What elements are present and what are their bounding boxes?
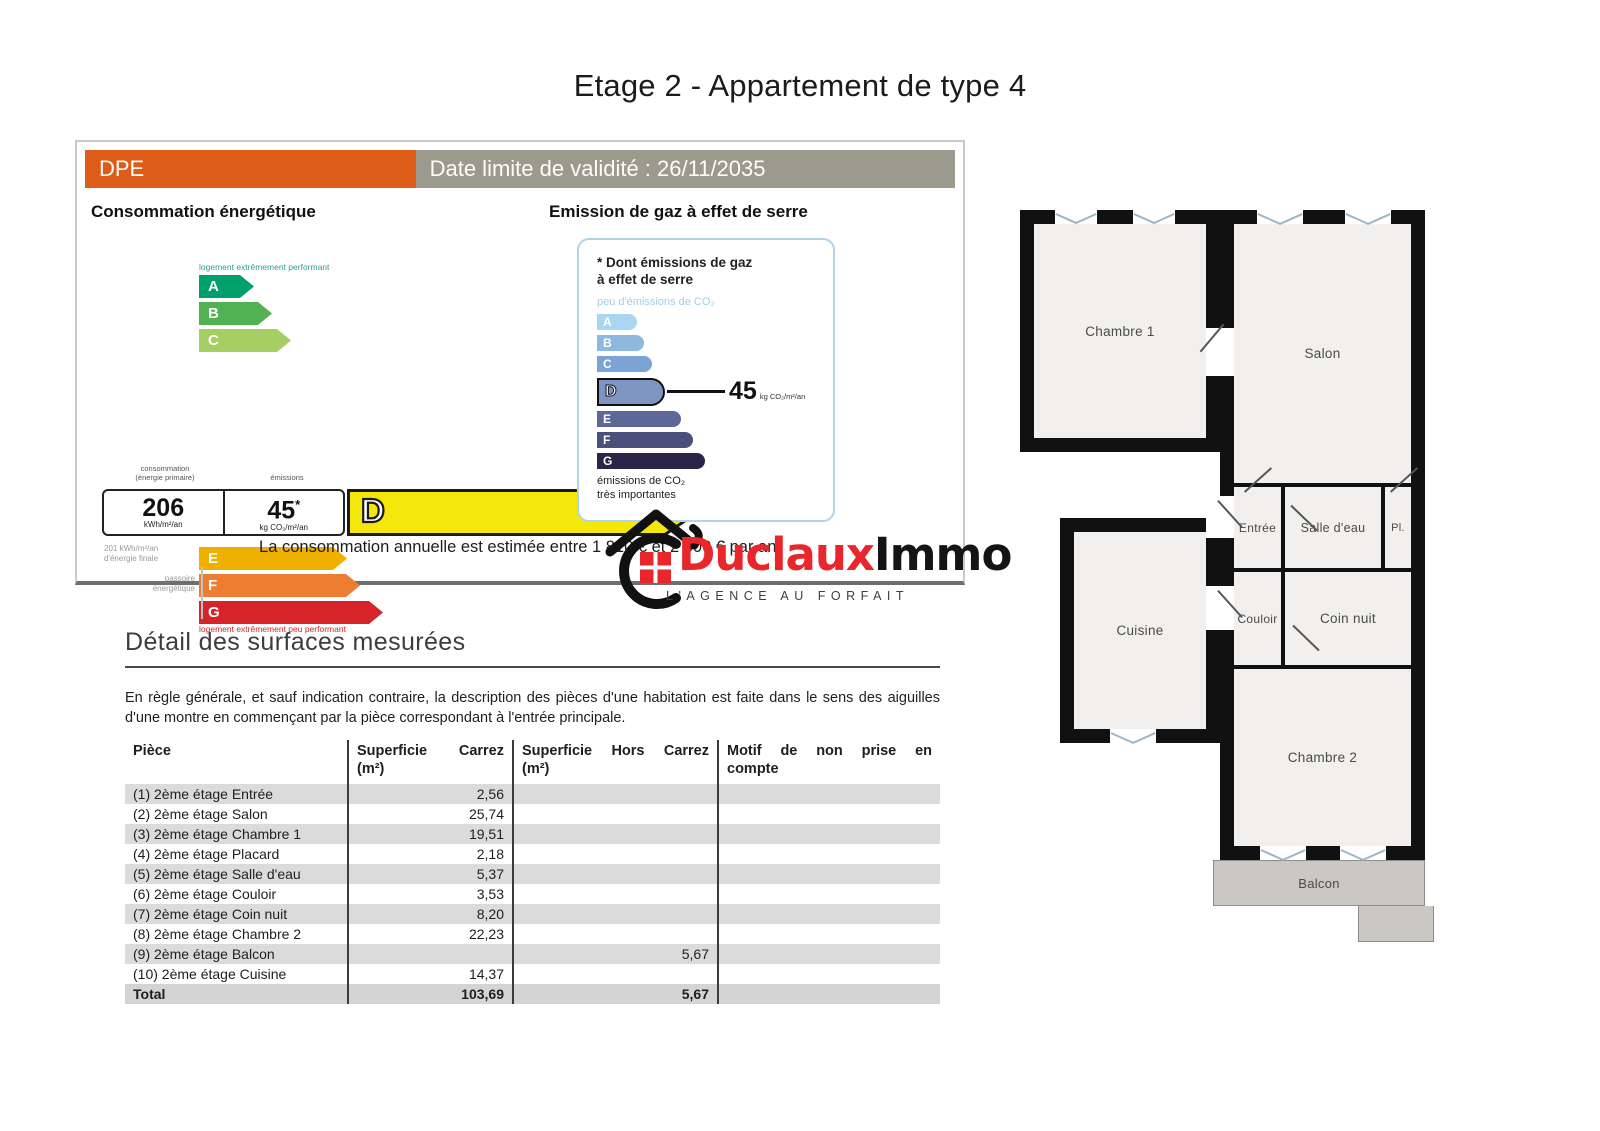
surfaces-section: Détail des surfaces mesurées En règle gé…	[125, 628, 940, 1004]
window-marker	[1345, 210, 1391, 224]
window-marker	[1260, 846, 1306, 860]
window-marker	[1110, 729, 1156, 743]
dpe-label: DPE	[85, 150, 416, 188]
table-row: (7) 2ème étage Coin nuit8,20	[125, 904, 940, 924]
co2-value: 45* kg CO₂/m²/an	[223, 491, 344, 534]
page-title: Etage 2 - Appartement de type 4	[0, 68, 1600, 104]
surfaces-table: PièceSuperficie Carrez(m²)Superficie Hor…	[125, 740, 940, 1004]
window-marker	[1340, 846, 1386, 860]
dpe-validity: Date limite de validité : 26/11/2035	[416, 150, 955, 188]
primary-energy-value: 206 kWh/m²/an	[104, 491, 223, 534]
room-cuisine: Cuisine	[1060, 518, 1220, 743]
gas-bar-A: A	[597, 314, 637, 330]
gas-bar-E: E	[597, 411, 681, 427]
dpe-header: DPE Date limite de validité : 26/11/2035	[85, 150, 955, 188]
gas-low-caption: peu d'émissions de CO₂	[597, 296, 833, 308]
window-marker	[1257, 210, 1303, 224]
door-opening	[1206, 328, 1234, 376]
room-balcon: Balcon	[1213, 860, 1425, 906]
table-row: (6) 2ème étage Couloir3,53	[125, 884, 940, 904]
gas-bar-G: G	[597, 453, 705, 469]
agency-logo: DuclauxImmo L'AGENCE AU FORFAIT	[600, 500, 980, 615]
surfaces-title: Détail des surfaces mesurées	[125, 628, 940, 668]
gas-emissions-box: * Dont émissions de gaz à effet de serre…	[577, 238, 835, 522]
room-chambre-2: Chambre 2	[1220, 665, 1425, 860]
room-salle-deau: Salle d'eau	[1285, 487, 1385, 572]
rating-letter: D	[361, 492, 385, 530]
floor-plan: Chambre 1 Salon Entrée Salle d'eau Pl. C…	[1015, 200, 1445, 960]
balcon-extension	[1358, 906, 1434, 942]
room-salon: Salon	[1220, 210, 1425, 487]
gas-scale: ABCD45kg CO₂/m²/anEFG	[597, 314, 833, 469]
energy-bar-F: F	[199, 574, 360, 597]
label-emissions: émissions	[237, 473, 337, 482]
table-row: (3) 2ème étage Chambre 119,51	[125, 824, 940, 844]
table-total-row: Total103,695,67	[125, 984, 940, 1004]
energy-bar-B: B	[199, 302, 272, 325]
gas-section-title: Emission de gaz à effet de serre	[549, 202, 808, 222]
energy-caption-top: logement extrêmement performant	[199, 262, 329, 272]
table-row: (5) 2ème étage Salle d'eau5,37	[125, 864, 940, 884]
gas-box-title: * Dont émissions de gaz à effet de serre	[597, 254, 833, 288]
energy-bar-A: A	[199, 275, 254, 298]
brand-tagline: L'AGENCE AU FORFAIT	[666, 589, 966, 603]
gas-bar-C: C	[597, 356, 652, 372]
table-header-row: PièceSuperficie Carrez(m²)Superficie Hor…	[125, 740, 940, 784]
room-coin-nuit: Coin nuit	[1285, 572, 1425, 665]
gas-bar-B: B	[597, 335, 644, 351]
table-row: (4) 2ème étage Placard2,18	[125, 844, 940, 864]
gas-bar-D-featured: D45kg CO₂/m²/an	[597, 377, 833, 406]
table-row: (9) 2ème étage Balcon5,67	[125, 944, 940, 964]
surfaces-intro: En règle générale, et sauf indication co…	[125, 688, 940, 728]
energy-value-box: 206 kWh/m²/an 45* kg CO₂/m²/an	[102, 489, 345, 536]
energy-sieve-bracket	[201, 567, 203, 619]
room-placard: Pl.	[1385, 487, 1425, 572]
table-row: (10) 2ème étage Cuisine14,37	[125, 964, 940, 984]
table-row: (8) 2ème étage Chambre 222,23	[125, 924, 940, 944]
energy-sieve-label: passoire énergétique	[135, 574, 195, 594]
window-marker	[1133, 210, 1175, 224]
energy-bar-G: G	[199, 601, 383, 624]
window-marker	[1055, 210, 1097, 224]
room-chambre-1: Chambre 1	[1020, 210, 1220, 452]
gas-bar-F: F	[597, 432, 693, 448]
energy-section-title: Consommation énergétique	[91, 202, 316, 222]
table-row: (1) 2ème étage Entrée2,56	[125, 784, 940, 804]
brand-name: DuclauxImmo	[678, 528, 1011, 581]
table-row: (2) 2ème étage Salon25,74	[125, 804, 940, 824]
label-consumption: consommation (énergie primaire)	[95, 464, 235, 482]
gas-high-caption: émissions de CO₂ très importantes	[597, 474, 833, 502]
page: Etage 2 - Appartement de type 4 DPE Date…	[0, 0, 1600, 1131]
energy-bar-C: C	[199, 329, 291, 352]
